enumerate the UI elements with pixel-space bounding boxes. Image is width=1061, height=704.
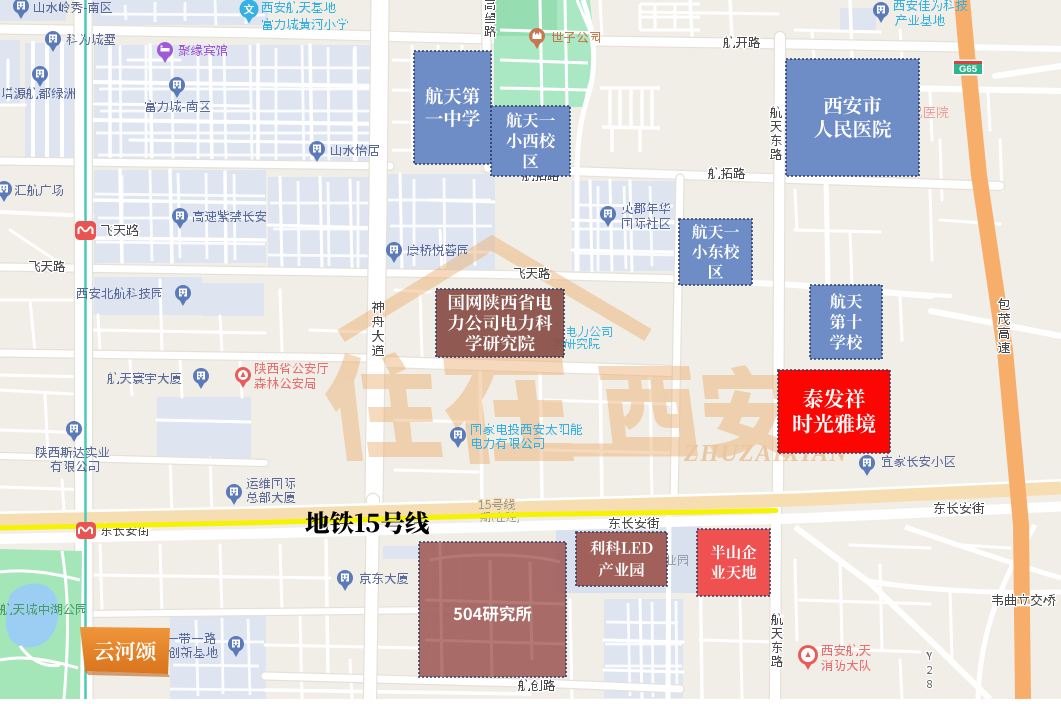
svg-text:G65: G65 (959, 64, 978, 75)
